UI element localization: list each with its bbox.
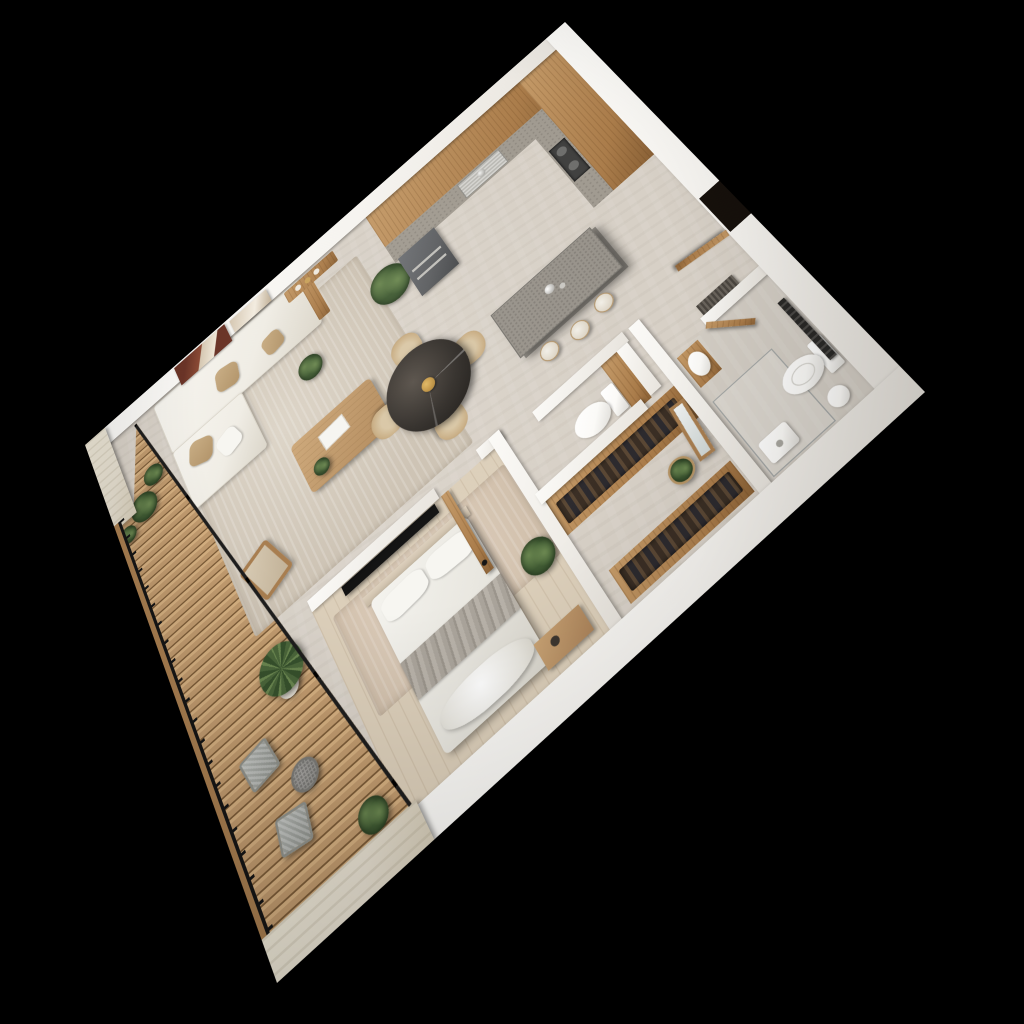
render-background — [0, 0, 1024, 1024]
floor-plan — [85, 22, 925, 983]
